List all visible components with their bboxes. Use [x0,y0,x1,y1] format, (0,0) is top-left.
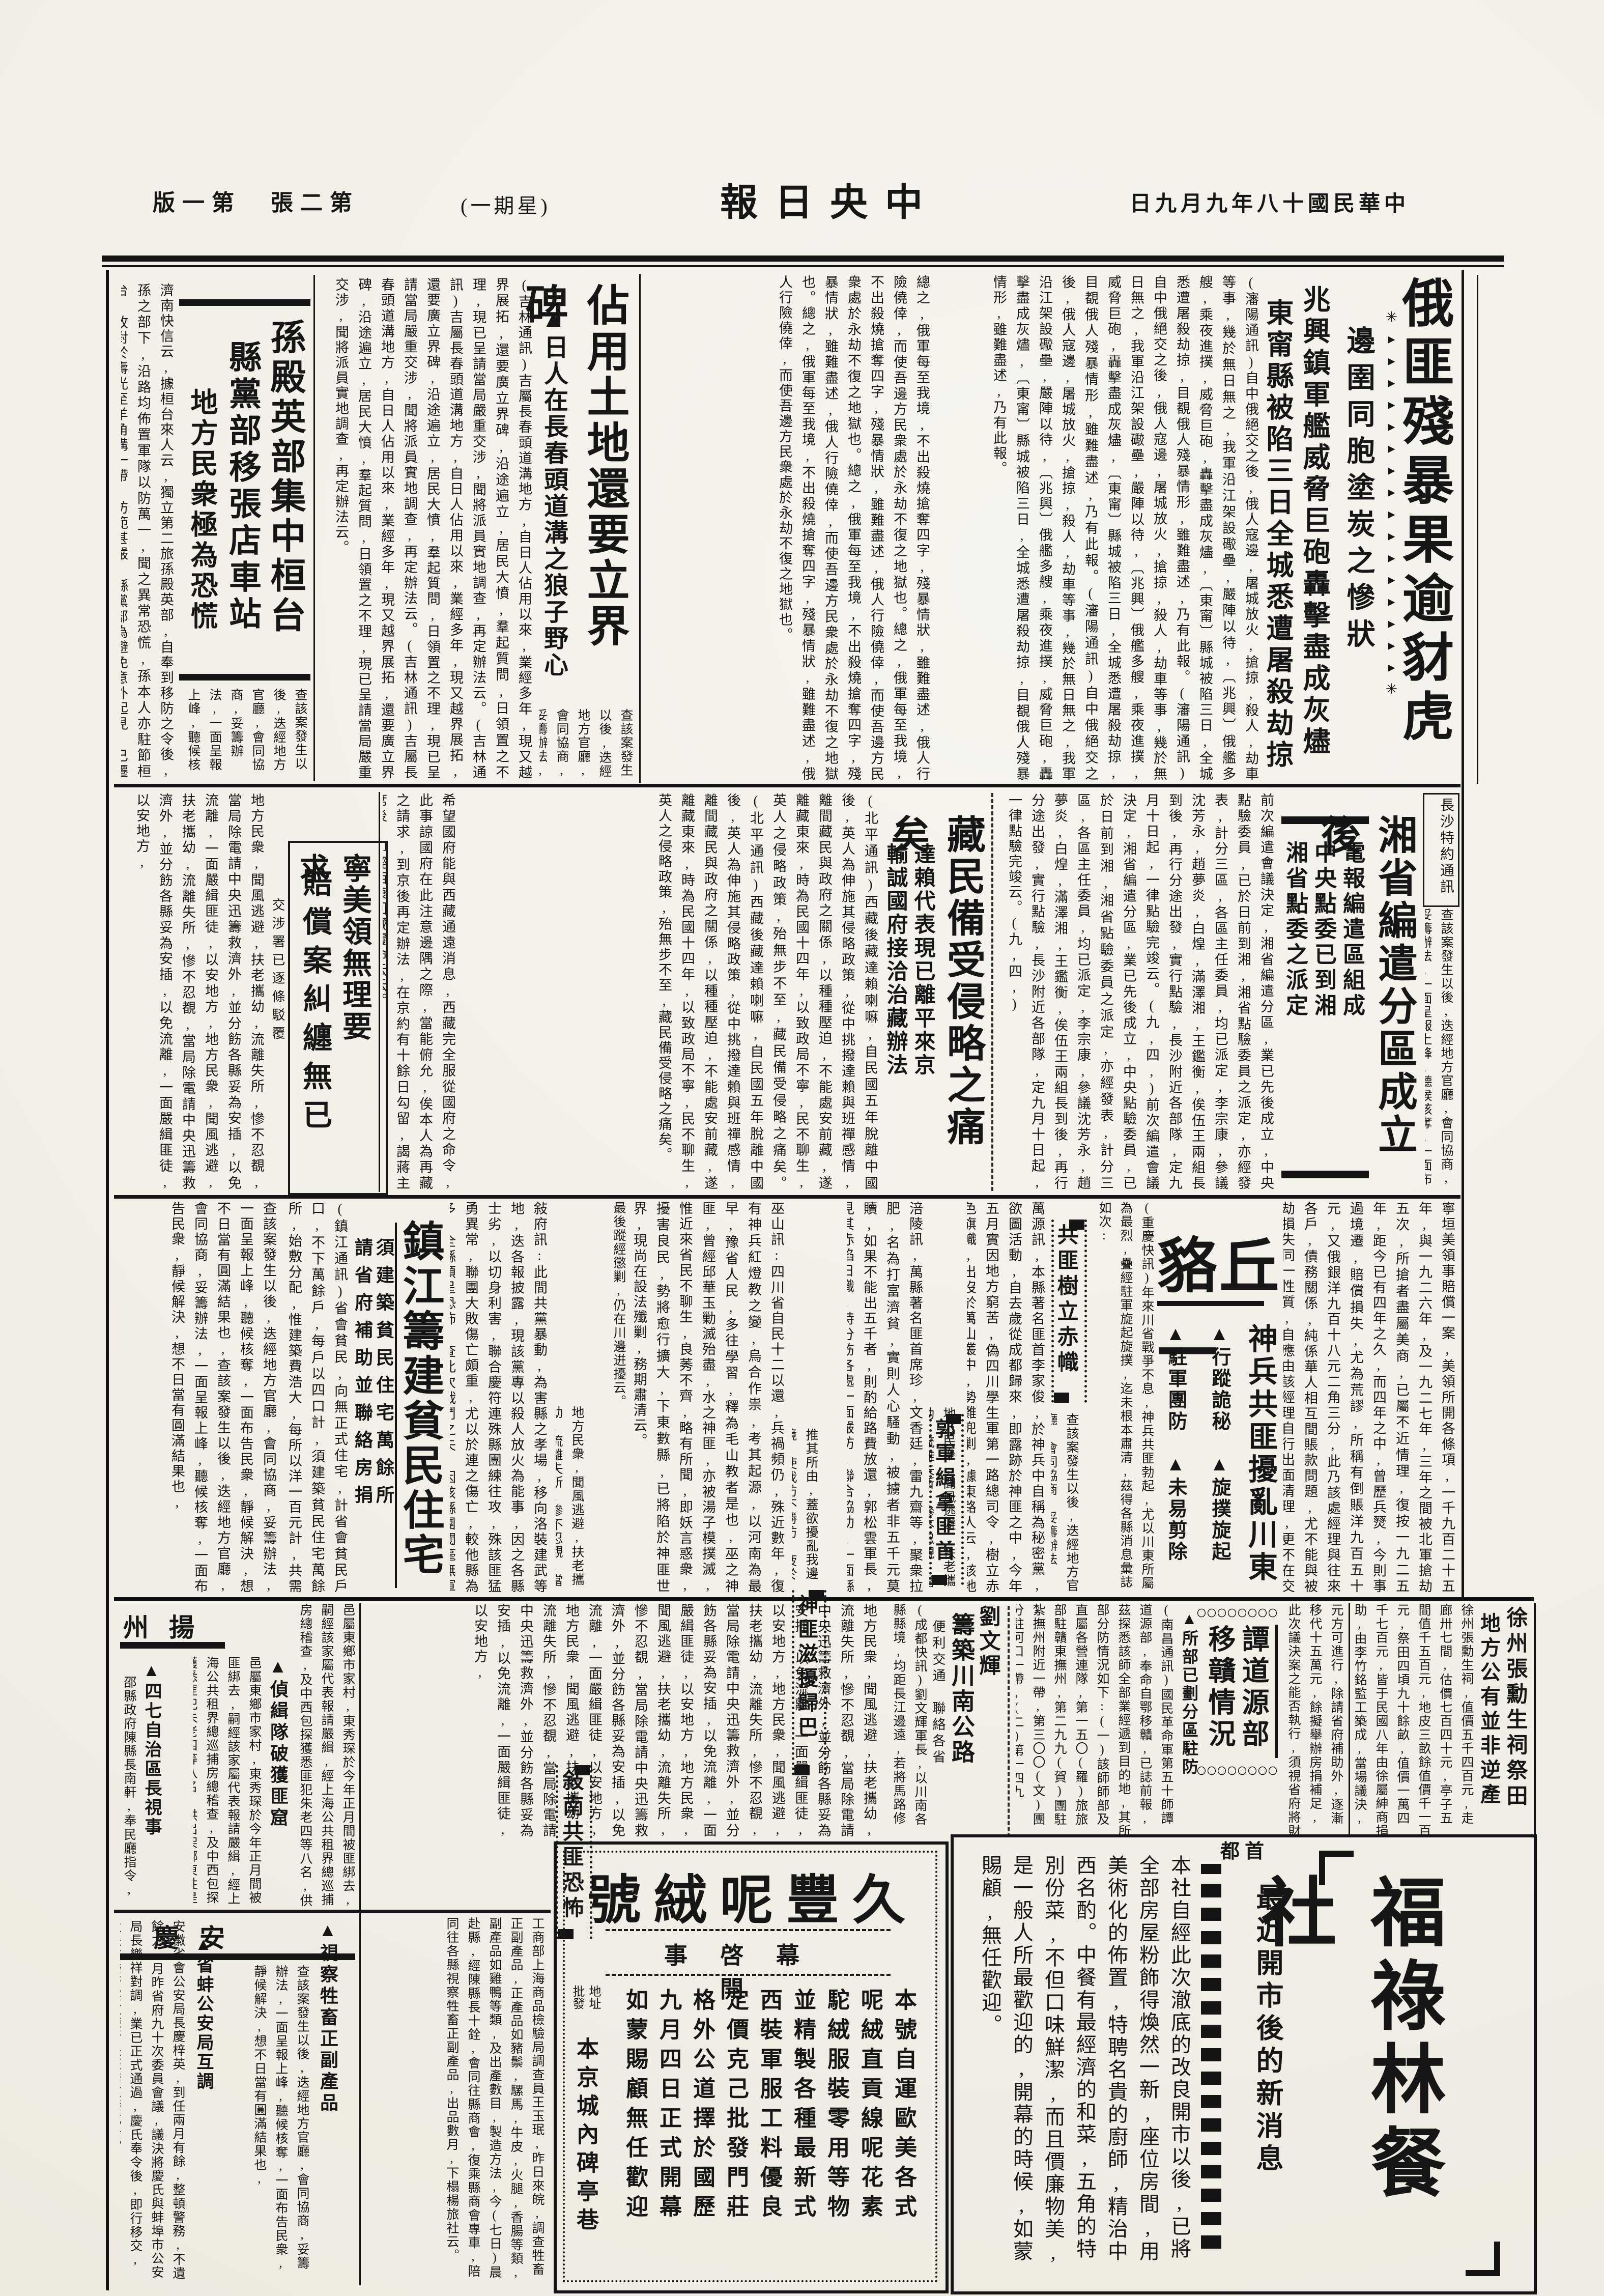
subhead-anqing-1: ▲視察牲畜正副產品 [316,1920,341,2144]
divider-a1 [313,275,315,781]
article-xunan-body: 敍府訊:此間共黨暴動,為害縣之孝場,移向洛裝建武等地,迭各報披露,現該黨專以殺人… [450,1201,551,1594]
article-russia-continue: 總之,俄軍每至我境,不出殺燒搶奪四字,殘暴情狀,雖難盡述,俄人行險僥倖,而使吾邊… [643,275,933,782]
subhead-yangzhou-2: ▲四七自治區長視事 [141,1661,164,1875]
yangzhou-header-bar [120,1642,225,1649]
article-guo-below: 地方民衆,聞風逃避,扶老攜幼,流離失所,慘不忍覩,當局除電請中央迅籌救濟外,並分… [929,1407,959,1594]
headline-tibet-invasion: 藏民備受侵略之痛矣 [940,814,990,1187]
ad-fulin-checker-decoration [1201,1864,1221,2249]
subhead-liu: 便利交通 聯絡各省 [932,1620,948,1777]
article-land-boundary: (吉林通訊)吉屬長春頭道溝地方,自日人佔用以來,業經多年,現又越界展拓,還要廣立… [317,277,535,780]
yangzhou-item1-right: 邑屬東鄉市家村,東秀琛於今年正月間被匪綁去,嗣經該家屬代表報請嚴緝,經上海公共租… [295,1603,358,1909]
ad-jiufeng-wavy-bottom [606,1974,891,1976]
ad-fulin-bracket-bottom [1466,2242,1500,2276]
anqing-item2-mid: 查該案發生以後,迭經地方官廳,會同協商,妥籌辦法,一面呈報上峰,聽候核奪,一面布… [220,1965,312,2279]
article-red-banner: 萬源訊,本縣著名匪首李家俊,於神兵中自稱為秘密黨,欲圖活動,自去歲從成都歸來,即… [967,1201,1048,1594]
headline-xuzhou-public: 地方公有並非逆產 [1479,1612,1503,1831]
ad-fulin-region: 都首 [1220,1835,1269,1863]
anqing-item1-body: 工商部上海商品檢驗局調查員王玉珉,昨日來皖,調查牲畜正副產品,正產品如豬鬃,騾馬… [345,1917,548,2280]
left-page-rule [106,270,109,2290]
ad-fulin-title: 福祿林餐社 [1356,1873,1455,2268]
headline-sun-dianying: 孫殿英部集中桓台 [267,319,310,655]
header-rule-thick [102,256,1504,262]
tan-deco-top: 〇〇〇〇〇〇〇〇 [1197,1606,1283,1620]
right-page-rule-upper [1462,270,1464,1598]
yangzhou-item1-left: 邑屬東鄉市家村,東秀琛於今年正月間被匪綁去,嗣經該家屬代表報請嚴緝,經上海公共租… [193,1656,265,1909]
label-changsha-wire: 長沙特約通訊 [1423,793,1459,907]
date-line: 日九月九年八十國民華中 [1130,186,1410,217]
tan-deco-bottom: 〇〇〇〇〇〇〇〇 [1197,1764,1283,1777]
band-d-filler: 地方民衆,聞風逃避,扶老攜幼,流離失所,慘不忍覩,當局除電請中央迅籌救濟外,並分… [363,1603,880,1838]
divider-a2 [639,274,641,783]
subhead-anqing-2: ▲省蚌公安局互調 [193,1935,216,2108]
article-xuzhou-body: 徐州張勳生祠,值價五千四百元,走廊卅七間,估價七百四十元,亭子五間值千五百元,地… [1352,1603,1477,1838]
xiang-subheads-bar-top [1281,816,1369,824]
subhead-xiang-2: 中央點委已到湘 [1313,841,1339,1167]
article-zhenjiang-tail: 元方可進行,除請省府補助外,逐漸移代十五萬元,餘擬舉辦房捐補足,此次議決案之能否… [1279,1603,1347,1838]
subhead-red-banner: 共匪樹立赤幟 [1051,1220,1087,1403]
subhead-zhenjiang-2: 請省府補助並聯絡房捐 [354,1238,376,1586]
tan-headline-rule [1275,1625,1278,1758]
divider-zigzag-b [991,793,993,1191]
subhead-xiang-1: 電報編遣區組成 [1341,841,1368,1167]
sun-rule-bottom [179,674,310,681]
subhead-zhenjiang-1: 須建築貧民住宅萬餘所 [376,1238,397,1586]
weekday-label: 一期星 [461,189,551,219]
headline-ningmei-2: 賠償案糾纏無已 [297,867,336,1183]
article-guo-body: 涪陵訊,萬縣著名匪首席珍,文香廷,雷九齋等,聚衆拉肥,名為打富濟貧,實則人心騷動… [847,1201,926,1594]
headline-party-office-move: 縣黨部移張店車站 [224,340,266,671]
headline-land-boundary: 佔用土地還要立界碑 [574,283,635,660]
rule-band-b-c [114,1195,1460,1199]
subhead-yangzhou-1: ▲偵緝隊破獲匪窟 [267,1656,291,1870]
article-tibet-body: (北平通訊)西藏後藏達賴喇嘛,自民國五年脫離中國後,英人為伸施其侵略政策,從中挑… [556,793,881,1191]
deck-russia: 邊圉同胞塗炭之慘狀 [1343,326,1379,687]
xiang-subheads-bar-bottom [1281,1171,1369,1178]
subhead-xiang-3: 湘省點委之派定 [1284,841,1311,1167]
article-sun-body: 濟南快信云,據桓台來人云,獨立第二旅孫殿英部,自奉到移防之令後,孫之部下,沿路均… [121,283,177,779]
section-header-yangzhou: 州揚 [123,1607,215,1644]
article-sun-foot: 查該案發生以後,迭經地方官廳,會同協商,妥籌辦法,一面呈報上峰,聽候核奪,一面布… [179,688,310,780]
headline-same-den: 貉丘一 [1157,1217,1281,1309]
subhead-land-boundary: ▲日人在長春頭道溝之狼子野心 [538,305,571,702]
subhead-tibet-1: 達賴代表現已離平來京 [913,843,938,1169]
anqing-item2-body: 安徽省會公安局長慶梓英,到任兩月有餘,整頓警務,不遺餘力,月昨省府九十次委員會議… [120,1920,188,2280]
headline-ningmei-1: 寧美領無理要求 [337,853,376,1072]
rule-anqing-top [114,1910,551,1913]
weekday-text: 一期星 [470,194,540,217]
header-rule-thin [102,265,1504,267]
ad-fulin-copy: 本社自經此次澈底的改良開市以後,已將全部房屋粉飾得煥然一新,座位房間,用美術化的… [963,1855,1195,2270]
article-russia-lead: (瀋陽通訊)自中俄絕交之後,俄人寇邊,屠城放火,搶掠,殺人,劫車等事,幾於無日無… [936,275,1262,782]
ad-fulin-subhead: 最近開市後的新消息 [1252,1883,1287,2209]
headline-russia-atrocity: 俄匪殘暴果逾豺虎 [1398,276,1460,780]
subhead-russia-1: 兆興鎮軍艦威脅巨砲轟擊盡成灰燼 [1301,285,1334,776]
article-tan-body: (南昌通訊)國民革命軍第五十師譚道源部,奉命自鄂移贛,已誌前報,茲探悉該師全部業… [1016,1603,1177,1838]
ad-jiufeng-addr-label: 地址 [589,1985,603,2031]
rule-band-a-b [114,784,1460,787]
yangzhou-item2-body: 邵縣政府陳縣長南軒,奉民廳指令,委王壽山,為自治第四區區長,該區轄境遼闊,聞王已… [120,1676,139,1908]
article-land-boundary-foot: 查該案發生以後,迭經地方官廳,會同協商,妥籌辦法,一面呈報上峰,聽候核奪,一面布… [539,708,636,781]
divider-d-wavy [1008,1606,1010,1837]
right-page-rule-outer [1477,275,1478,784]
headline-tan-2: 移贛情況 [1207,1625,1240,1761]
ad-jiufeng-wholesale-label: 批發 [573,1985,586,2031]
article-ningmei-tail: 寧垣美領事賠償一案,美領所開各條項,一千九百二十五年,與一九二六年,及一九二七年… [1283,1201,1458,1594]
same-den-underline [1157,1301,1264,1306]
headline-locals-panic: 地方民衆極為恐慌 [182,388,222,673]
article-xunan-tailcol: 最後蹤經懲剿,仍在川邊逬擾云。 [596,1201,629,1594]
band-c-left-filler: 查該案發生以後,迭經地方官廳,會同協商,妥籌辦法,一面呈報上峰,聽候核奪,一面布… [121,1201,280,1594]
article-tibet-tail: 希望國府能與西藏通遠消息,西藏完全服從國府之命令,此事諒國府在此注意邊隅之際,當… [383,793,459,1191]
article-liu-body: (成都快訊)劉文輝軍長,以川南各縣縣境,均距長江邊遠,若將馬路修理完善,不僅對於… [886,1603,930,1838]
divider-d1 [1349,1603,1350,1837]
ad-jiufeng-wavy-top [606,1929,891,1931]
headline-xiang-demobilize: 湘省編遣分區成立後 [1371,814,1423,1187]
sun-rule-top [179,299,310,306]
headline-xuzhou-shrine: 徐州張勳生祠祭田 [1505,1606,1531,1825]
subhead-russia-2: 東甯縣被陷三日全城悉遭屠殺劫掠 [1264,298,1298,782]
ad-jiufeng-copy: 本號自運歐美各式 呢絨直貢線呢花素 駝絨服裝零用等物 並精製各種最新式 西裝軍服… [615,1988,920,2253]
edition-label: 版一第 張二第 [153,184,359,217]
article-shenfei-below: 推其所由,蓋欲擾亂我邊境,使我防不勝防,疲於奔命,以逞其陰謀也,此種殘暴行為,稍… [792,1428,821,1594]
headline-liu-road: 籌築川南公路 [949,1612,978,1765]
ad-jiufeng-title: 號絨呢豐久 [585,1857,921,1934]
article-xiang-body: 前次編遣會議決定,湘省編遣分區,業已先後成立,中央點驗委員,已於日前到湘,湘省點… [998,793,1277,1191]
band-b-left-filler: 地方民衆,聞風逃避,扶老攜幼,流離失所,慘不忍覩,當局除電請中央迅籌救濟外,並分… [121,793,268,1191]
sidehead-ningmei: 交涉署已逐條駁覆 [272,898,287,1183]
subhead-tan: ▲所部已劃分區駐防 [1180,1609,1201,1780]
masthead: 報日央中 [720,172,940,226]
subhead-shenbing-big: 神兵共匪擾亂川東 [1239,1323,1281,1594]
ad-jiufeng-address: 本京城內碑亭巷 [570,2037,601,2261]
headline-tan-1: 譚道源部 [1241,1625,1273,1761]
article-shenfei-body: 巫山訊:四川省自民十二以還,兵禍頻仍,殊近數年,復有神兵紅燈教之變,烏合作祟,考… [633,1201,788,1594]
subhead-shenbing-2: ▲駐軍團防 ▲未易剪除 [1162,1323,1190,1594]
article-xunan-below: 地方民衆,聞風逃避,扶老攜幼,流離失所,慘不忍覩,當局除電請中央迅籌救濟外,並分… [556,1406,587,1594]
article-zhenjiang-body: (鎮江通訊)省會貧民,向無正式住宅,計省會貧民戶口,不下萬餘戶,每戶以四口計,須… [285,1201,351,1594]
article-red-banner-below: 查該案發生以後,迭經地方官廳,會同協商,妥籌辦法,一面呈報上峰,聽候核奪,一面布… [1051,1413,1082,1594]
headline-zhenjiang-housing: 鎮江籌建貧民住宅 [402,1220,450,1588]
subhead-tibet-2: 輸誠國府接洽治藏辦法 [885,843,911,1169]
xiang-right-col: 查該案發生以後,迭經地方官廳,會同協商,妥籌辦法,一面呈報上峰,聽候核奪,一面布… [1425,908,1456,1189]
subhead-shenbing-1: ▲行蹤詭秘 ▲旋撲旋起 [1206,1323,1234,1594]
newspaper-page: 版一第 張二第 一期星 報日央中 日九月九年八十國民華中 俄匪殘暴果逾豺虎 ✳▸… [0,0,1604,2296]
headline-liu-name: 劉文輝 [978,1605,1004,1687]
article-qiuhe-lead: (重慶快訊)年來川省戰爭不息,神兵共匪勃起,尤以川東所屬為最烈,疊經駐軍旋起旋撲… [1095,1201,1157,1594]
deck-arrows-icon: ✳▸▸▸▸▸▸▸▸▸▸▸▸▸▸▸▸✳ [1380,308,1399,701]
